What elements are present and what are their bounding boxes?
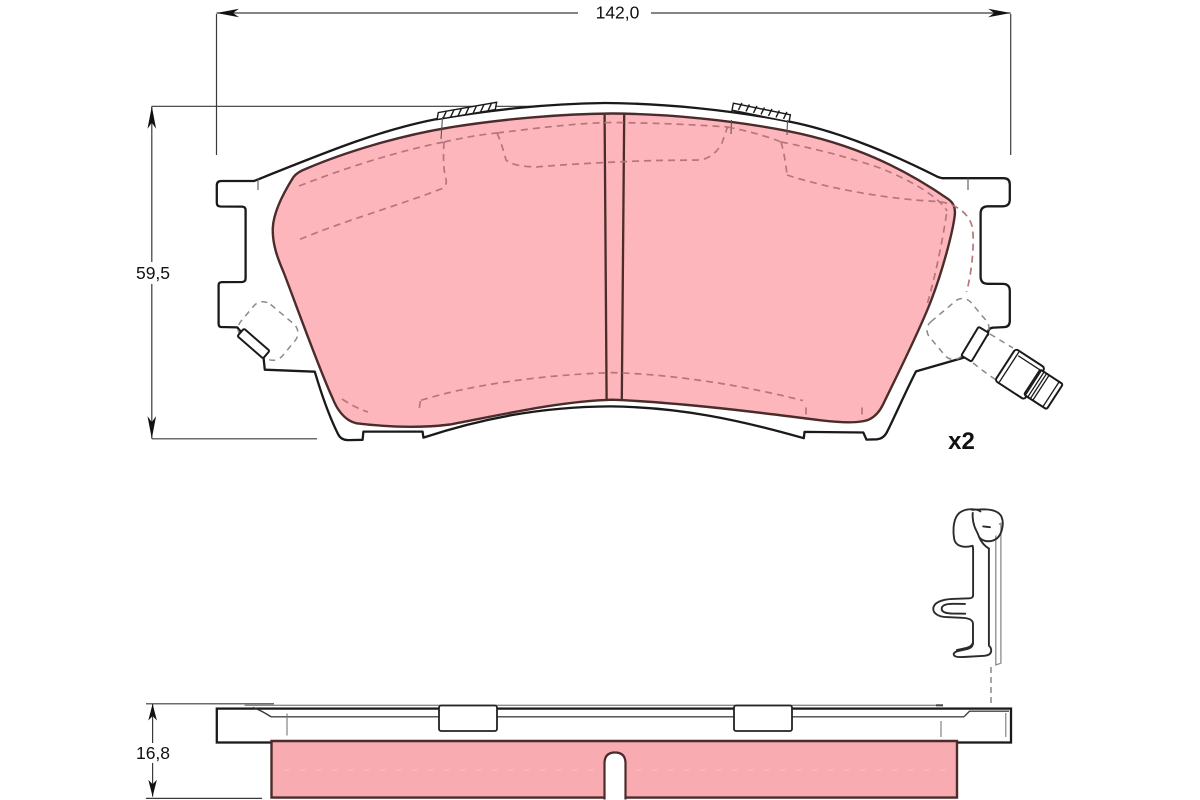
svg-text:59,5: 59,5 — [136, 263, 170, 283]
svg-text:16,8: 16,8 — [136, 743, 170, 763]
svg-text:142,0: 142,0 — [596, 3, 640, 23]
svg-text:x2: x2 — [948, 428, 975, 455]
